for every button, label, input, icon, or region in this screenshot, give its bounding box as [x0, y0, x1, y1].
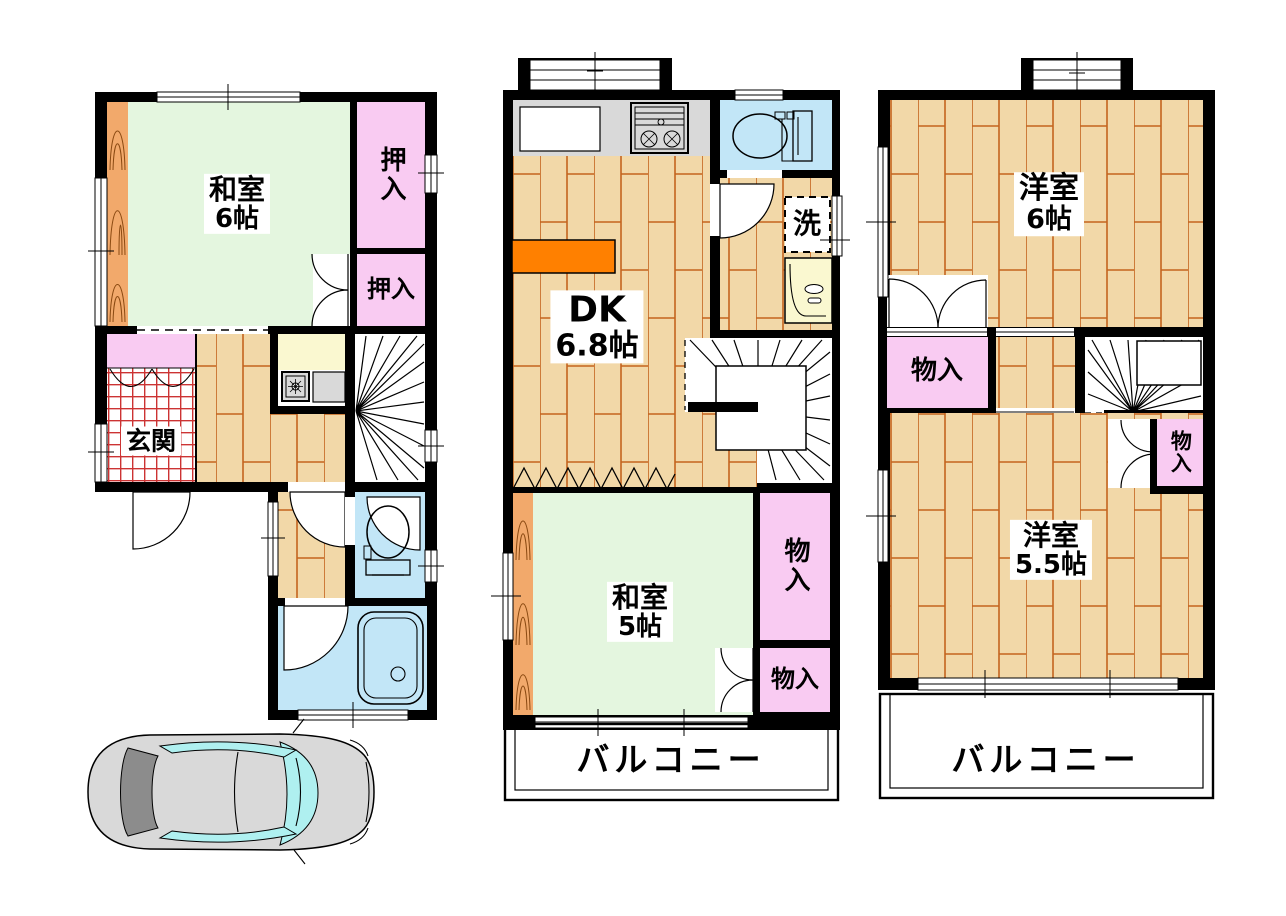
corridor-3f	[996, 337, 1075, 408]
label-genkan: 玄関	[121, 427, 181, 456]
staircase-1f	[355, 334, 425, 482]
label-monoire-lower: 物入	[771, 667, 819, 693]
label-dk: DK 6.8帖	[550, 290, 643, 363]
floor1-wood-grain-strip	[107, 102, 128, 326]
label-laundry: 洗	[793, 209, 821, 239]
kitchen-counter-1f	[278, 334, 345, 370]
car-illustration	[88, 719, 374, 864]
entrance-door-swing	[133, 492, 190, 549]
label-monoire-right: 物入	[1169, 430, 1192, 474]
label-oshiire-lower: 押入	[367, 277, 415, 303]
sink-icon	[313, 372, 345, 402]
floorplan-page: 和室 6帖 押入 押入 玄関 DK 6.8帖 洗 和室 5帖 物入 物入 バルコ…	[0, 0, 1286, 916]
label-oshiire-upper: 押入	[377, 146, 405, 204]
staircase-3f	[1085, 337, 1203, 413]
label-monoire-upper: 物入	[781, 537, 809, 595]
label-balcony-3f: バルコニー	[951, 742, 1140, 778]
car-rear-window	[121, 748, 159, 836]
label-balcony-2f: バルコニー	[576, 742, 765, 778]
shoe-cabinet	[107, 334, 195, 368]
kitchen-sink-icon	[520, 107, 600, 151]
label-washitsu-5: 和室 5帖	[607, 582, 673, 642]
label-washitsu-6: 和室 6帖	[204, 174, 270, 234]
hallway-floor	[197, 334, 270, 482]
label-youshitsu-6: 洋室 6帖	[1014, 172, 1084, 236]
label-youshitsu-55: 洋室 5.5帖	[1010, 520, 1092, 580]
stove-icon	[282, 372, 309, 401]
room-toilet-2f	[720, 100, 832, 170]
label-monoire-left: 物入	[911, 357, 963, 385]
room-genkan	[107, 368, 195, 482]
floor3-plan	[866, 52, 1215, 798]
floor2-wood-grain-strip	[513, 493, 533, 715]
kitchen-counter-table	[512, 240, 615, 273]
washbasin-icon	[785, 258, 832, 323]
